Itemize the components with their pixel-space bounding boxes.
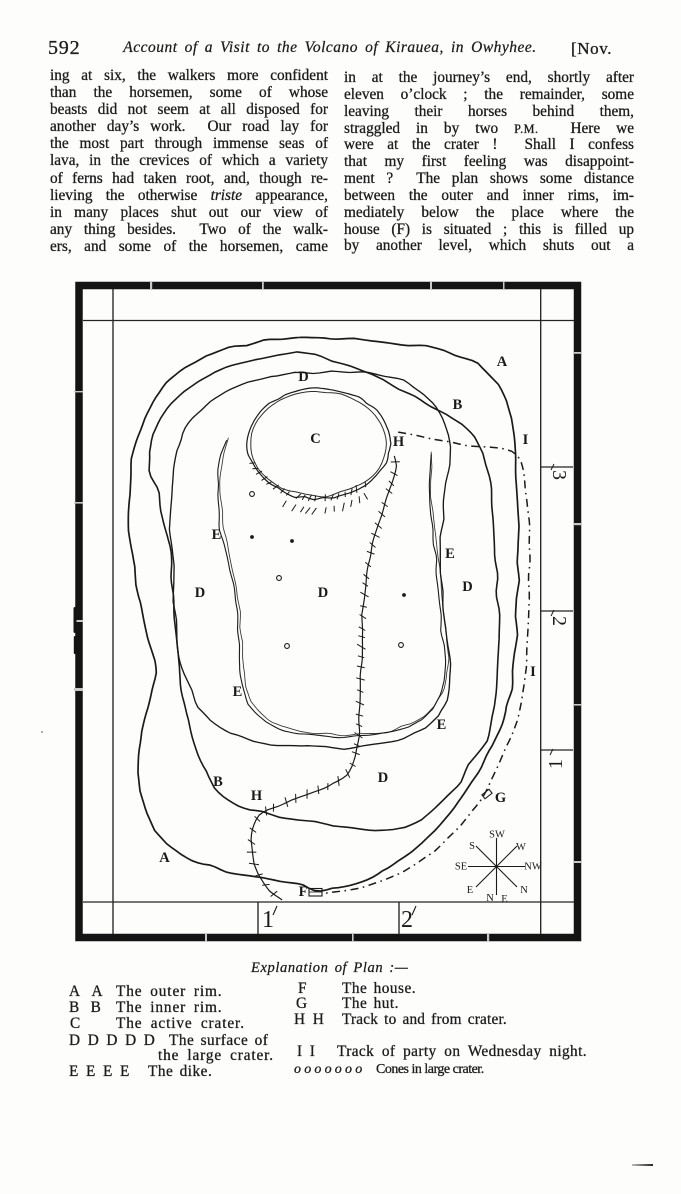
svg-text:B: B: [453, 397, 463, 413]
svg-text:S: S: [469, 841, 475, 852]
svg-text:D: D: [462, 579, 472, 595]
svg-text:NW: NW: [524, 862, 542, 873]
svg-text:N: N: [520, 885, 528, 896]
svg-text:G: G: [495, 790, 506, 806]
svg-text:D: D: [378, 770, 388, 786]
svg-text:E: E: [437, 717, 447, 733]
svg-text:B: B: [213, 774, 223, 790]
svg-text:F: F: [299, 884, 308, 900]
svg-text:N: N: [486, 893, 494, 904]
svg-text:D: D: [318, 585, 328, 601]
svg-text:I: I: [530, 664, 536, 680]
svg-text:H: H: [393, 434, 405, 450]
svg-text:2: 2: [401, 907, 413, 933]
svg-text:2: 2: [548, 616, 570, 626]
svg-text:A: A: [497, 354, 508, 370]
svg-text:E: E: [445, 546, 455, 562]
svg-text:E: E: [212, 527, 222, 543]
svg-text:1: 1: [262, 907, 274, 933]
svg-text:I: I: [523, 432, 529, 448]
svg-text:SE: SE: [455, 862, 467, 873]
svg-text:D: D: [195, 585, 205, 601]
svg-text:W: W: [516, 842, 526, 853]
svg-text:A: A: [159, 850, 170, 866]
svg-text:D: D: [298, 369, 308, 385]
svg-text:E: E: [467, 885, 473, 896]
svg-text:E: E: [501, 894, 507, 905]
svg-text:E: E: [233, 684, 243, 700]
svg-text:H: H: [251, 788, 263, 804]
svg-text:3: 3: [548, 470, 570, 480]
svg-text:1: 1: [545, 759, 567, 769]
svg-text:SW: SW: [489, 830, 505, 841]
svg-text:C: C: [310, 431, 320, 447]
